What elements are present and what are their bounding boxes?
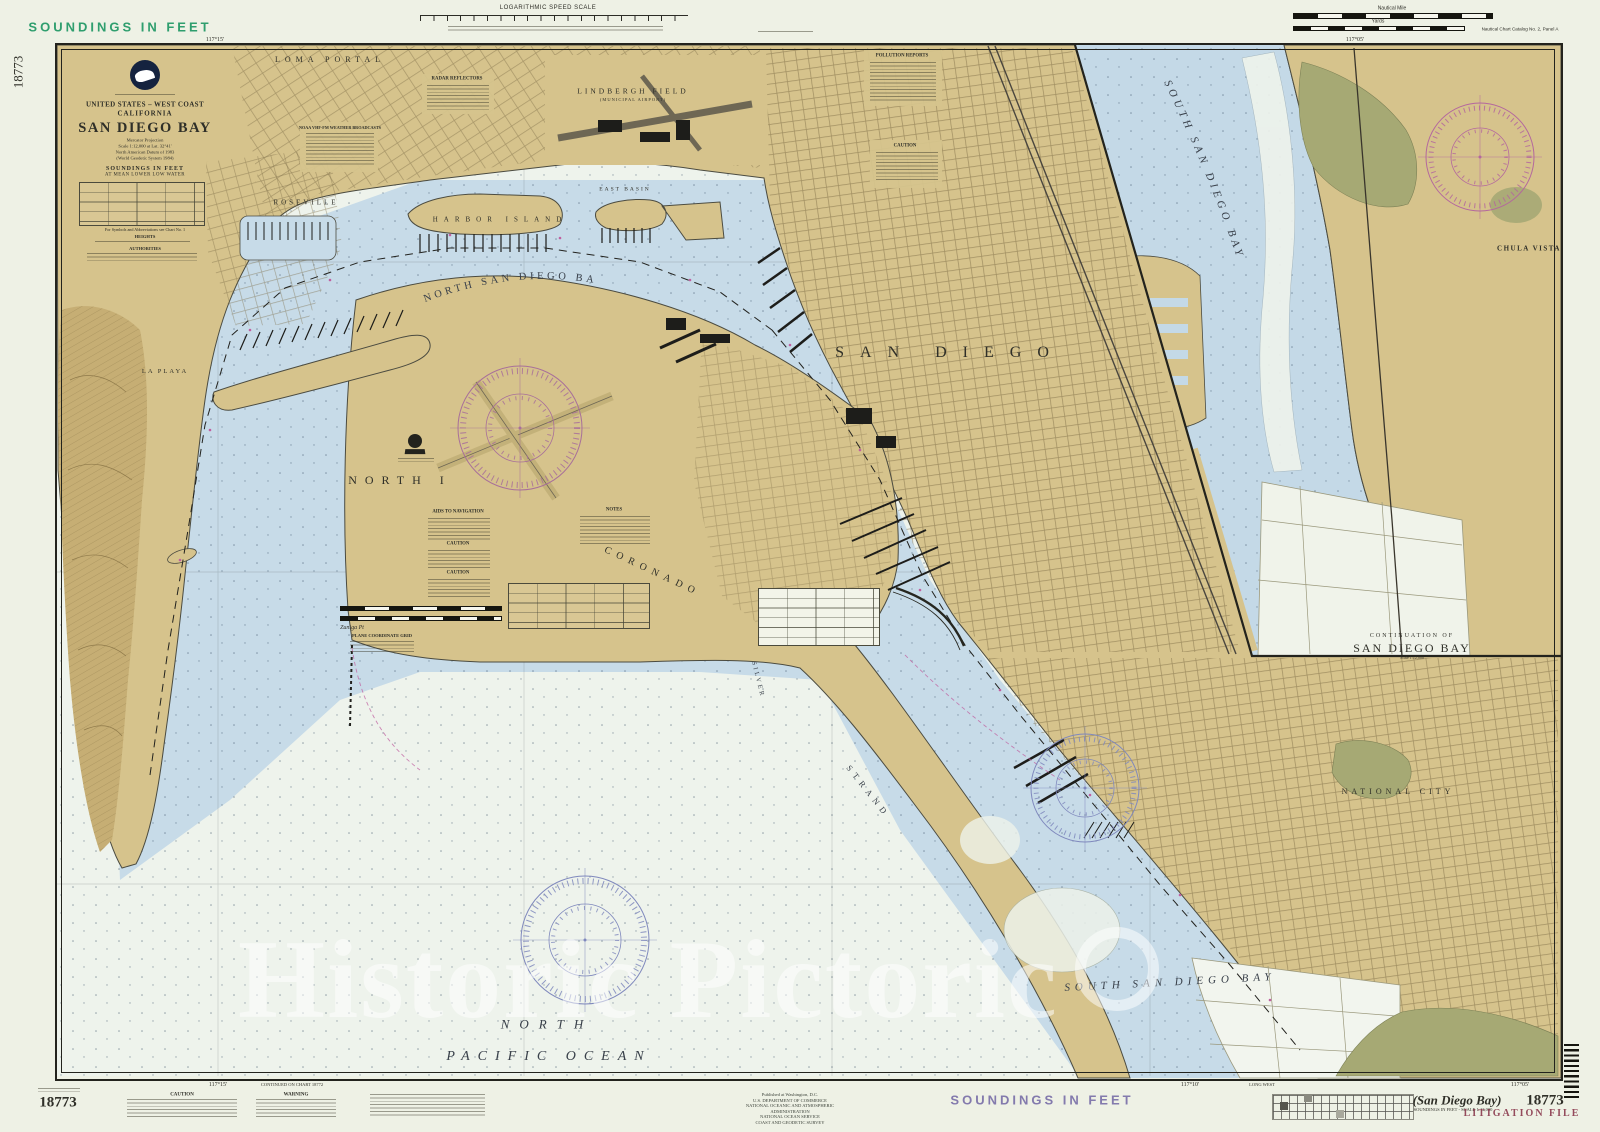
chart-number-bottom-left: 18773 — [39, 1096, 77, 1111]
inset-title: SAN DIEGO BAY — [1353, 642, 1471, 654]
publication-line: NATIONAL OCEANIC AND ATMOSPHERIC ADMINIS… — [738, 1103, 842, 1114]
tidal-flat-2 — [960, 816, 1020, 864]
title-block: UNITED STATES – WEST COAST CALIFORNIA SA… — [75, 50, 215, 280]
projection-line-1: Mercator Projection — [127, 139, 164, 144]
label-national-city: NATIONAL CITY — [1342, 788, 1455, 796]
projection-line-4: (World Geodetic System 1984) — [116, 157, 173, 162]
long-west-note: LONG WEST — [1249, 1083, 1275, 1088]
soundings-in-feet-bottom: SOUNDINGS IN FEET — [950, 1094, 1133, 1107]
noaa-logo — [130, 60, 160, 90]
symbols-note: For Symbols and Abbreviations see Chart … — [105, 228, 185, 232]
ni-bridge-table — [508, 583, 650, 629]
caution-bottom-fake — [127, 1099, 237, 1119]
side-chart-number: 18773 — [12, 56, 25, 89]
pollution-note-fake — [870, 62, 936, 102]
bay-bridge-table — [758, 588, 880, 646]
authorities-fake — [87, 253, 197, 261]
heights-fake — [95, 241, 190, 244]
inset-marsh-2 — [1490, 187, 1542, 223]
caution-bottom-header: CAUTION — [170, 1093, 194, 1098]
soundings-in-feet-top: SOUNDINGS IN FEET — [28, 21, 211, 34]
ni-caution-2: CAUTION — [447, 572, 470, 577]
label-san-diego: SAN DIEGO — [835, 345, 1065, 361]
chart-number-bottom-right: 18773 — [1526, 1094, 1564, 1109]
inset-continuation-of: CONTINUATION OF — [1370, 633, 1454, 639]
paren-title: (San Diego Bay) — [1413, 1094, 1502, 1107]
notes-fake — [580, 516, 650, 544]
radar-note-header: RADAR REFLECTORS — [432, 78, 483, 83]
label-north-island: NORTH I — [348, 474, 452, 486]
noaa-emblem-north-island — [408, 434, 422, 448]
yards-label: Yards — [1372, 20, 1385, 25]
datum-note: AT MEAN LOWER LOW WATER — [105, 174, 185, 179]
publication-block: Published at Washington, D.C. U.S. DEPAR… — [738, 1092, 842, 1126]
print-note-top — [758, 31, 813, 34]
calibration-cell — [1280, 1102, 1288, 1110]
label-municipal-airport: (MUNICIPAL AIRPORT) — [600, 98, 666, 103]
calibration-cell — [1304, 1094, 1312, 1102]
barcode — [1564, 1044, 1579, 1098]
projection-line-2: Scale 1:12,000 at Lat. 32°41' — [118, 145, 171, 150]
title-region: UNITED STATES – WEST COAST — [86, 102, 204, 109]
soundings-note: SOUNDINGS IN FEET — [106, 166, 184, 172]
caution-sd-header: CAUTION — [894, 145, 917, 150]
ni-caution-1: CAUTION — [447, 543, 470, 548]
label-lindbergh-field: LINDBERGH FIELD — [577, 87, 688, 95]
weather-note-header: NOAA VHF-FM WEATHER BROADCASTS — [299, 126, 381, 130]
authorities-header: AUTHORITIES — [129, 247, 161, 252]
title-state: CALIFORNIA — [117, 111, 172, 118]
speed-scale-ruler — [420, 15, 688, 21]
tide-table — [79, 182, 205, 226]
logo-caption-fake — [115, 94, 175, 97]
projection-line-3: North American Datum of 1983 — [116, 151, 175, 156]
note-bottom-fake — [370, 1094, 485, 1116]
plane-grid-fake — [350, 641, 414, 653]
label-east-basin: EAST BASIN — [599, 187, 651, 193]
ni-caution-2-fake — [428, 579, 490, 599]
emblem-fake — [398, 458, 434, 462]
tick-bottom-left: 117°15' — [209, 1082, 227, 1088]
heights-header: HEIGHTS — [135, 235, 156, 240]
print-note-bottom-left — [38, 1088, 80, 1092]
publication-line: COAST AND GEODETIC SURVEY — [738, 1120, 842, 1126]
tick-top-left: 117°15' — [206, 37, 224, 43]
pollution-note-header: POLLUTION REPORTS — [876, 55, 928, 60]
catalog-note: Nautical Chart Catalog No. 2, Panel A — [1482, 28, 1559, 33]
aids-fake — [428, 518, 490, 540]
continued-note: CONTINUED ON CHART 18772 — [261, 1083, 323, 1088]
litigation-stamp: LITIGATION FILE — [1464, 1109, 1581, 1119]
nautical-mile-bar — [1293, 13, 1493, 19]
weather-note-fake — [306, 133, 374, 167]
label-la-playa: LA PLAYA — [142, 369, 188, 376]
nautical-mile-label: Nautical Mile — [1378, 7, 1407, 12]
ni-scalebar-1 — [340, 606, 502, 611]
tick-top-right: 117°05' — [1346, 37, 1364, 43]
aids-header: AIDS TO NAVIGATION — [432, 511, 483, 516]
chart-title: SAN DIEGO BAY — [78, 121, 211, 136]
watermark-text: Historic Pictoric — [238, 918, 1059, 1042]
nautical-chart-page: NORTH SAN DIEGO BAY SOUTH SAN DIEGO BAY … — [0, 0, 1600, 1132]
ni-caution-1-fake — [428, 550, 490, 568]
notes-header: NOTES — [606, 509, 622, 514]
label-loma-portal: LOMA PORTAL — [275, 56, 385, 64]
label-zuniga-pt: Zuniga Pt — [340, 625, 364, 631]
calibration-cell — [1336, 1110, 1344, 1118]
watermark: Historic Pictoric — [238, 916, 1388, 1045]
yards-bar — [1293, 26, 1465, 31]
tick-bottom-mid: 117°10' — [1181, 1082, 1199, 1088]
tick-bottom-right: 117°05' — [1511, 1082, 1529, 1088]
label-harbor-island: HARBOR ISLAND — [433, 217, 568, 224]
plane-grid-header: PLANE COORDINATE GRID — [352, 634, 412, 639]
label-roseville: ROSEVILLE — [273, 200, 338, 207]
inset-scale: Scale 1:12,000 — [1400, 656, 1424, 660]
warning-bottom-header: WARNING — [284, 1093, 309, 1098]
ni-scalebar-2 — [340, 616, 502, 621]
watermark-logo-ring — [1075, 927, 1159, 1011]
caution-sd-fake — [876, 152, 938, 182]
speed-scale-label: LOGARITHMIC SPEED SCALE — [500, 5, 597, 11]
label-chula-vista: CHULA VISTA — [1497, 246, 1561, 253]
speed-scale-caption — [448, 26, 663, 33]
radar-note-fake — [427, 85, 489, 111]
warning-bottom-fake — [256, 1099, 336, 1119]
label-pacific-ocean: PACIFIC OCEAN — [446, 1050, 651, 1064]
